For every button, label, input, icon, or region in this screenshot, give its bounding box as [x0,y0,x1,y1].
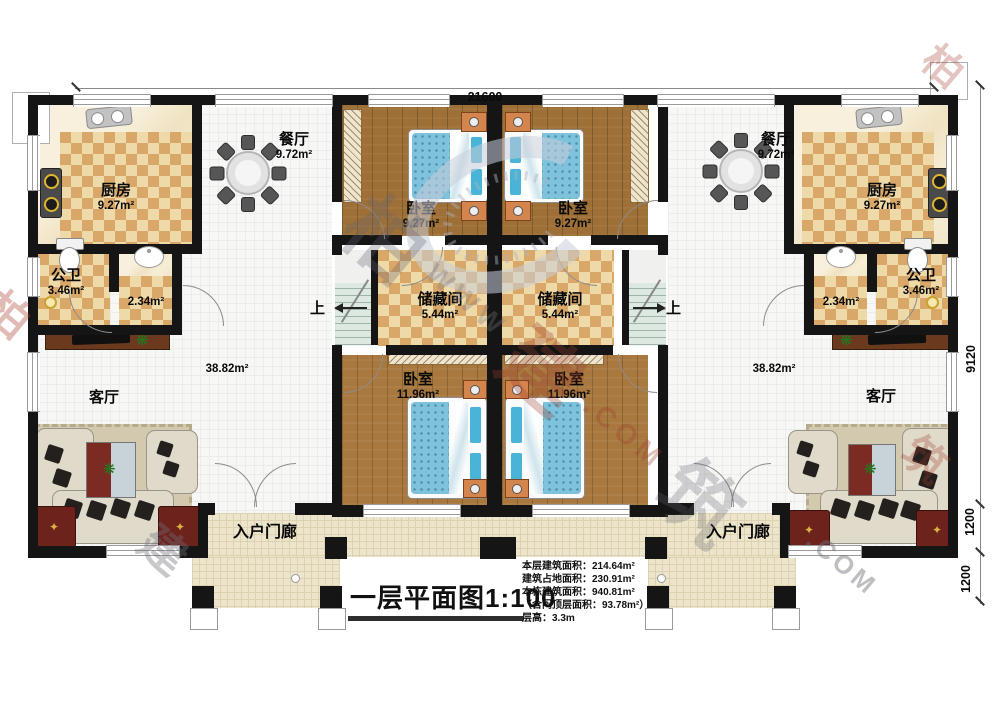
column-base [318,608,346,630]
chair-icon [241,135,255,150]
wall-centerblock-right [658,345,668,517]
window [27,352,40,412]
window [73,94,151,107]
stair-arrow-head [657,303,666,313]
bed-blanket [412,133,453,199]
nightstand [463,380,487,399]
wall-centerblock-right [658,95,668,202]
bed-pillow [510,406,523,444]
chair-icon [272,166,287,180]
stat-line: （含闷顶层面积：93.78m²） [522,599,752,612]
nightstand [505,380,529,399]
room-label-bedroom-bottom-left: 卧室11.96m² [397,372,439,402]
wall-stair-divider-left [371,250,378,345]
wall-stair-divider-right [622,250,629,345]
window [215,94,333,107]
window [368,94,450,107]
room-label-storage-left: 储藏间5.44m² [417,292,462,322]
dining-set-left [215,140,279,204]
room-label-bath-left: 公卫3.46m² [48,268,84,298]
plant-icon: ❋ [840,333,853,348]
room-label-kitchen-left: 厨房9.27m² [98,183,134,213]
window [542,94,624,107]
dimension-line-right [980,86,981,604]
wall-bath-divider-right [867,244,877,292]
porch-column [192,586,214,608]
plant-icon: ❋ [103,462,116,477]
porch-column [325,537,347,559]
window [363,504,461,517]
room-label-porch-left: 入户门廊 [233,524,297,542]
stairs-left [335,283,372,345]
stair-arrow-line [343,307,367,309]
room-label-bedroom-top-left: 卧室9.27m² [403,201,439,231]
room-label-bedroom-top-right: 卧室9.27m² [555,201,591,231]
area-label-living-right: 38.82m² [753,363,796,376]
stove-left [40,168,62,218]
porch-door-stop [291,574,300,583]
bed-blanket [539,133,580,199]
dimension-right-main: 9120 [964,329,978,389]
dimension-tick [71,82,81,92]
room-label-porch-right: 入户门廊 [706,524,770,542]
floor-drain-icon [44,296,57,309]
porch-column [774,586,796,608]
room-label-bath-right: 公卫3.46m² [903,268,939,298]
chair-icon [765,164,780,178]
bed-fold [450,133,470,199]
wall-storage-bottom [502,345,613,355]
window [946,135,959,191]
dimension-line-top [75,88,935,89]
stairs-up-label-right: 上 [666,297,681,318]
window [946,352,959,412]
bed-top-left [408,129,488,203]
column-base [190,608,218,630]
porch-column [480,537,516,559]
side-table: ✦ [158,506,202,548]
bed-pillow [509,168,522,196]
wall-centerblock-left [332,95,342,202]
bed-blanket [411,402,452,494]
stairs-up-label-left: 上 [310,297,325,318]
burner-icon [44,174,59,189]
build-stats: 本层建筑面积：214.64m² 建筑占地面积：230.91m² 本栋建筑面积：9… [522,560,752,625]
window [27,257,40,297]
title-underline [348,616,523,621]
floor-drain-icon [926,296,939,309]
chair-icon [210,166,225,180]
stat-line: 建筑占地面积：230.91m² [522,573,752,586]
wall-center-party [487,95,502,517]
window [106,545,180,558]
wall-bathblock-left [172,244,182,335]
nightstand [463,479,487,498]
washbasin-icon [134,246,164,268]
bed-pillow [470,168,483,196]
nightstand [461,201,487,221]
wall-bedtop-bottom [502,235,548,245]
room-label-dining-left: 餐厅9.72m² [276,132,312,162]
wardrobe-top-left [343,109,362,203]
bed-pillow [470,136,483,164]
dimension-top-value: 21600 [445,90,525,104]
chair-icon [734,133,748,148]
bed-blanket [540,402,581,494]
wall-centerblock-left [332,345,342,517]
stat-line: 本层建筑面积：214.64m² [522,560,752,573]
wall-door-stub [295,503,340,515]
porch-floor-lower-left [192,557,340,608]
dimension-right-low: 1200 [959,553,973,605]
room-label-storage-right: 储藏间5.44m² [537,292,582,322]
wall-jog-left [198,503,208,558]
window [532,504,630,517]
room-label-wash-left: 2.34m² [128,296,164,309]
area-label-living-left: 38.82m² [206,363,249,376]
bed-top-right [504,129,584,203]
wall-storage-bottom [386,345,487,355]
room-label-dining-right: 餐厅9.72m² [758,132,794,162]
window [841,94,919,107]
wall-kitchen-right [784,95,794,254]
wardrobe-top-right [630,109,649,203]
dimension-right-mid: 1200 [963,496,977,548]
wall-kitchen-left [192,95,202,254]
wall-door-stub [660,503,694,515]
window [946,257,959,297]
wall-bathblock-right [804,244,814,335]
dining-table-icon [719,149,763,193]
nightstand [505,112,531,132]
side-table: ✦ [788,510,830,550]
bed-pillow [509,136,522,164]
porch-column [645,537,667,559]
nightstand [461,112,487,132]
bed-pillow [469,406,482,444]
dining-table-icon [226,151,270,195]
stat-line: 本栋建筑面积：940.81m² [522,586,752,599]
window [788,545,862,558]
stairs-right [629,283,666,345]
room-label-wash-right: 2.34m² [823,296,859,309]
stair-arrow-head [334,303,343,313]
nightstand [505,201,531,221]
chair-icon [241,197,255,212]
nightstand [505,479,529,498]
wall-bath-divider-left [109,244,119,292]
room-label-bedroom-bottom-right: 卧室11.96m² [548,372,590,402]
plant-icon: ❋ [864,462,877,477]
plant-icon: ❋ [136,333,149,348]
burner-icon [44,197,59,212]
column-base [772,608,800,630]
burner-icon [932,174,947,189]
chair-icon [734,195,748,210]
washbasin-icon [826,246,856,268]
floor-plan-canvas: ❋ ❋ ✦ ✦ ❋ ❋ ✦ ✦ [0,0,1000,706]
bed-fold [523,133,543,199]
chair-icon [703,164,718,178]
room-label-kitchen-right: 厨房9.27m² [864,183,900,213]
wall-bedtop-bottom [445,235,487,245]
room-label-living-left: 客厅 [89,390,119,407]
stair-arrow-line [633,307,657,309]
porch-column [320,586,342,608]
room-label-living-right: 客厅 [866,389,896,406]
window [27,135,40,191]
side-table: ✦ [32,506,76,548]
burner-icon [932,197,947,212]
stat-line: 层高：3.3m [522,612,752,625]
window [657,94,775,107]
